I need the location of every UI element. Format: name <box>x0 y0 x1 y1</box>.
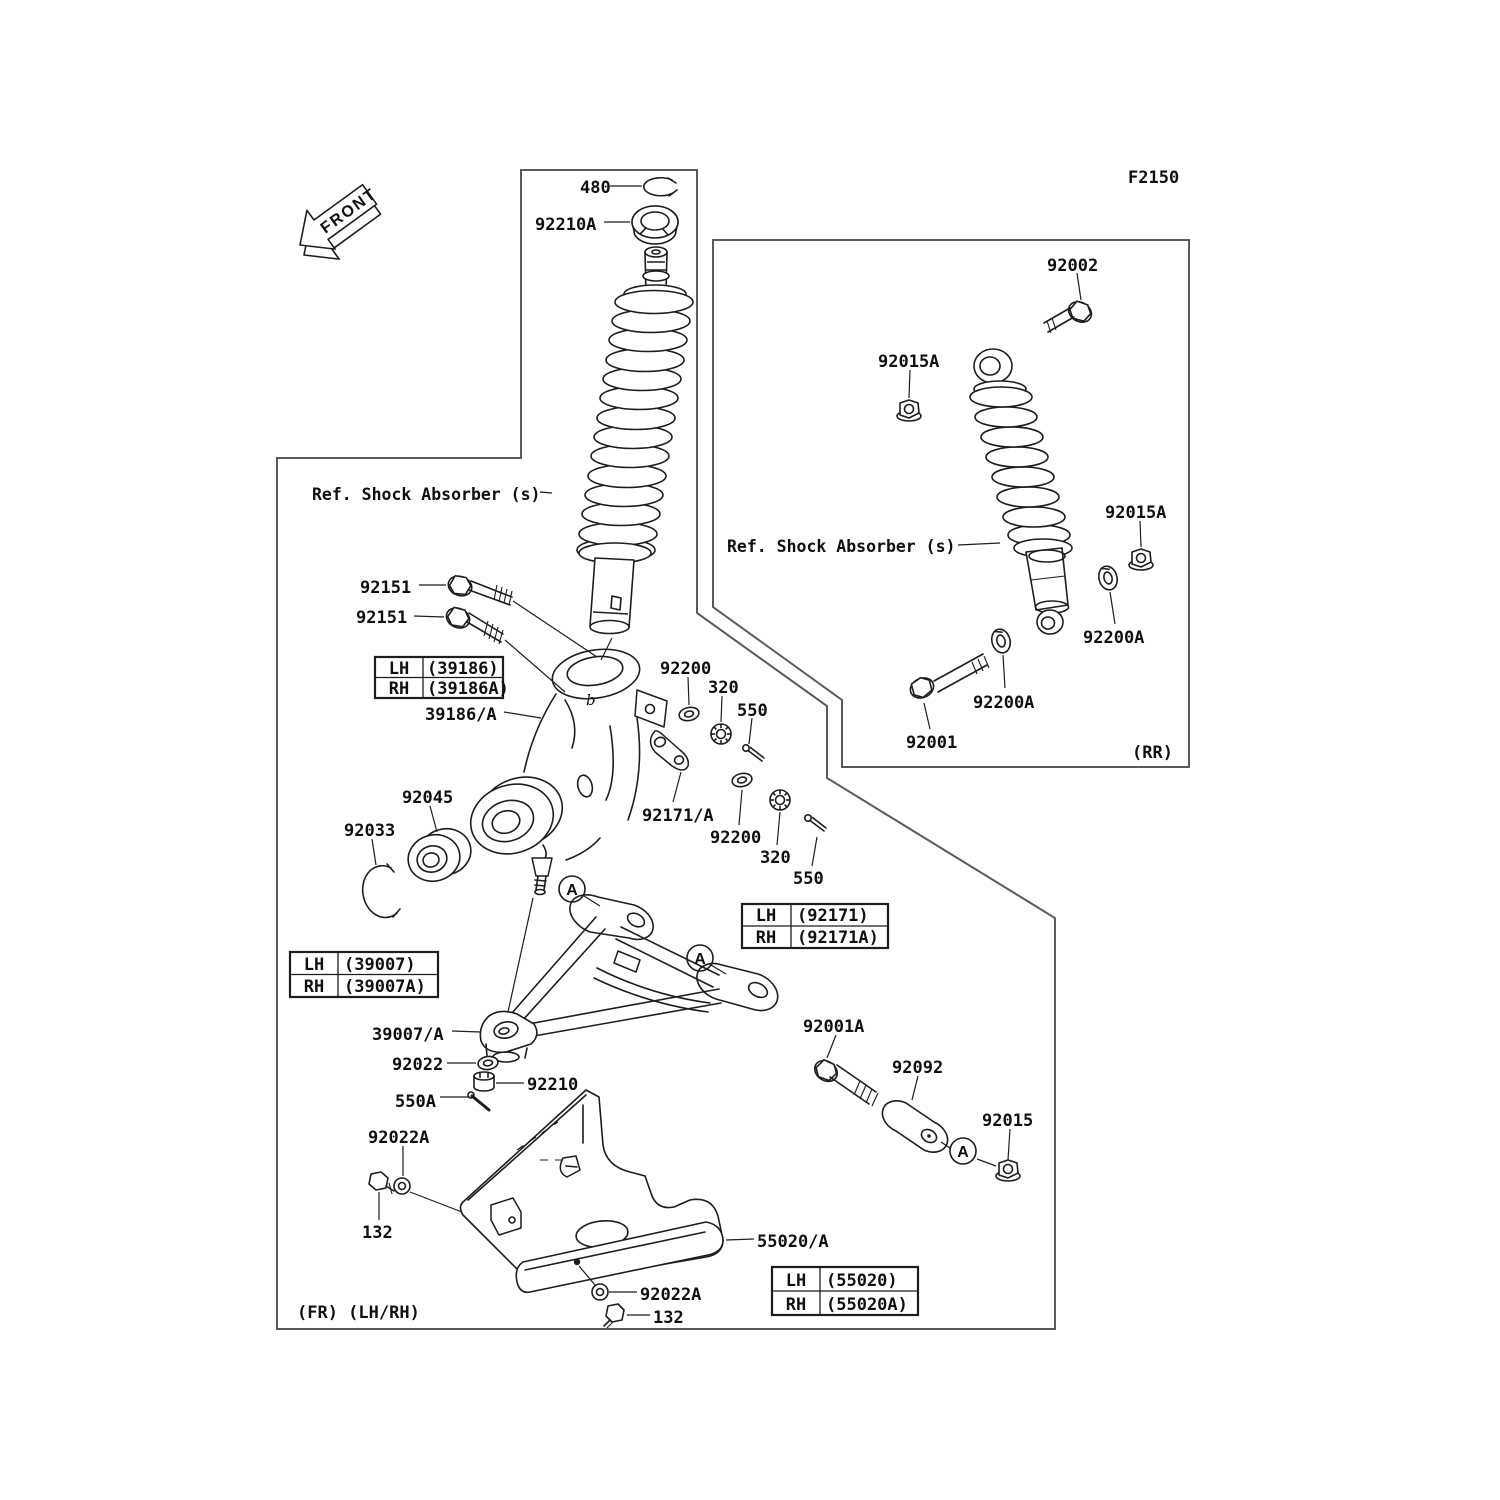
label-92002: 92002 <box>1047 256 1098 276</box>
table-cell: RH <box>304 977 324 997</box>
rear-shock-absorber-drawing <box>970 297 1095 634</box>
label-550a: 550A <box>395 1092 436 1112</box>
guard-bolt-front-drawing <box>369 1172 394 1194</box>
label-92151-2: 92151 <box>356 608 407 628</box>
label-132-front: 132 <box>362 1223 393 1243</box>
tie-rod-washer-lower <box>731 772 753 789</box>
table-cell: RH <box>756 928 776 948</box>
label-320-upper: 320 <box>708 678 739 698</box>
table-cell: LH <box>786 1271 806 1291</box>
label-92092: 92092 <box>892 1058 943 1078</box>
wheel-bearing-drawing <box>403 823 476 887</box>
label-92200-upper: 92200 <box>660 659 711 679</box>
leader-lines <box>372 186 1141 1315</box>
ball-joint-castle-nut <box>474 1072 494 1091</box>
label-480: 480 <box>580 178 611 198</box>
label-92045: 92045 <box>402 788 453 808</box>
front-shock-absorber-drawing <box>577 178 693 634</box>
variant-table-39186: LH (39186) RH (39186A) <box>375 657 509 699</box>
label-55020: 55020/A <box>757 1232 829 1252</box>
ref-front-shock: Ref. Shock Absorber (s) <box>312 485 540 504</box>
figure-code: F2150 <box>1128 168 1179 188</box>
label-92015: 92015 <box>982 1111 1033 1131</box>
label-92200-lower: 92200 <box>710 828 761 848</box>
part-labels: 480 92210A 92002 92015A 92015A Ref. Shoc… <box>297 178 1173 1328</box>
ref-rear-shock: Ref. Shock Absorber (s) <box>727 537 955 556</box>
label-39007: 39007/A <box>372 1025 444 1045</box>
rear-upper-nut-drawing <box>897 400 921 421</box>
cotter-pin-upper <box>743 745 764 761</box>
ball-joint-cotter-pin <box>472 1096 489 1110</box>
castle-nut-upper <box>711 724 731 744</box>
callout-b-label: b <box>586 691 596 709</box>
label-92171a: 92171/A <box>642 806 714 826</box>
knuckle-bolt-1-drawing <box>445 572 512 605</box>
tie-rod-arm-drawing <box>651 731 689 770</box>
rear-washer-upper-drawing <box>1096 564 1120 592</box>
table-cell: LH <box>389 659 409 679</box>
ball-joint-washer <box>477 1055 499 1071</box>
cotter-pin-lower <box>805 815 826 831</box>
label-92022: 92022 <box>392 1055 443 1075</box>
variant-table-55020: LH (55020) RH (55020A) <box>772 1267 918 1315</box>
table-cell: LH <box>304 955 324 975</box>
guard-washer-rear-drawing <box>592 1284 608 1300</box>
tie-rod-washer-upper <box>678 706 700 723</box>
view-marker-rear: (RR) <box>1132 743 1173 763</box>
label-39186: 39186/A <box>425 705 497 725</box>
table-cell: (39007A) <box>344 977 426 997</box>
rear-side-nut-drawing <box>1129 549 1153 570</box>
guard-bolt-rear-drawing <box>604 1304 624 1328</box>
exploded-parts-diagram: FRONT F2150 <box>0 0 1500 1500</box>
label-92001: 92001 <box>906 733 957 753</box>
label-320-lower: 320 <box>760 848 791 868</box>
label-92210: 92210 <box>527 1075 578 1095</box>
label-92210a: 92210A <box>535 215 596 235</box>
callout-a-2: A <box>687 945 713 971</box>
knuckle-bolt-2-drawing <box>443 604 503 644</box>
arm-bushing-drawing <box>882 1101 947 1152</box>
callout-a-3-label: A <box>957 1144 969 1161</box>
callout-a-1: A <box>559 876 585 902</box>
label-92015a-upper: 92015A <box>878 352 939 372</box>
view-marker-front: (FR) (LH/RH) <box>297 1303 420 1323</box>
label-92022a-front: 92022A <box>368 1128 429 1148</box>
guard-plate-drawing <box>461 1090 724 1292</box>
label-550-upper: 550 <box>737 701 768 721</box>
callout-a-1-label: A <box>566 882 578 899</box>
arm-pivot-nut-drawing <box>996 1160 1020 1181</box>
callout-a-2-label: A <box>694 951 706 968</box>
label-550-lower: 550 <box>793 869 824 889</box>
table-cell: RH <box>786 1295 806 1315</box>
guard-washer-front-drawing <box>394 1178 410 1194</box>
suspension-arm-drawing <box>480 895 777 1062</box>
circlip-drawing <box>363 864 400 917</box>
parts-diagram-page: FRONT F2150 <box>0 0 1500 1500</box>
callout-a-3: A <box>950 1138 976 1164</box>
rear-washer-lower-drawing <box>989 627 1013 655</box>
variant-table-39007: LH (39007) RH (39007A) <box>290 952 438 997</box>
table-cell: (39007) <box>344 955 416 975</box>
label-92001a: 92001A <box>803 1017 864 1037</box>
label-92033: 92033 <box>344 821 395 841</box>
front-direction-arrow: FRONT <box>286 171 389 274</box>
table-cell: (39186) <box>427 659 499 679</box>
table-cell: (39186A) <box>427 679 509 699</box>
castle-nut-lower <box>770 790 790 810</box>
variant-table-92171: LH (92171) RH (92171A) <box>742 904 888 948</box>
table-cell: (92171A) <box>797 928 879 948</box>
table-cell: LH <box>756 906 776 926</box>
arm-pivot-bolt-drawing <box>811 1056 878 1106</box>
label-92200a-upper: 92200A <box>1083 628 1144 648</box>
table-cell: (92171) <box>797 906 869 926</box>
front-coil-spring <box>577 291 693 562</box>
table-cell: RH <box>389 679 409 699</box>
label-92015a-side: 92015A <box>1105 503 1166 523</box>
label-92022a-rear: 92022A <box>640 1285 701 1305</box>
label-92200a-lower: 92200A <box>973 693 1034 713</box>
label-92151-1: 92151 <box>360 578 411 598</box>
label-132-rear: 132 <box>653 1308 684 1328</box>
table-cell: (55020A) <box>826 1295 908 1315</box>
table-cell: (55020) <box>826 1271 898 1291</box>
